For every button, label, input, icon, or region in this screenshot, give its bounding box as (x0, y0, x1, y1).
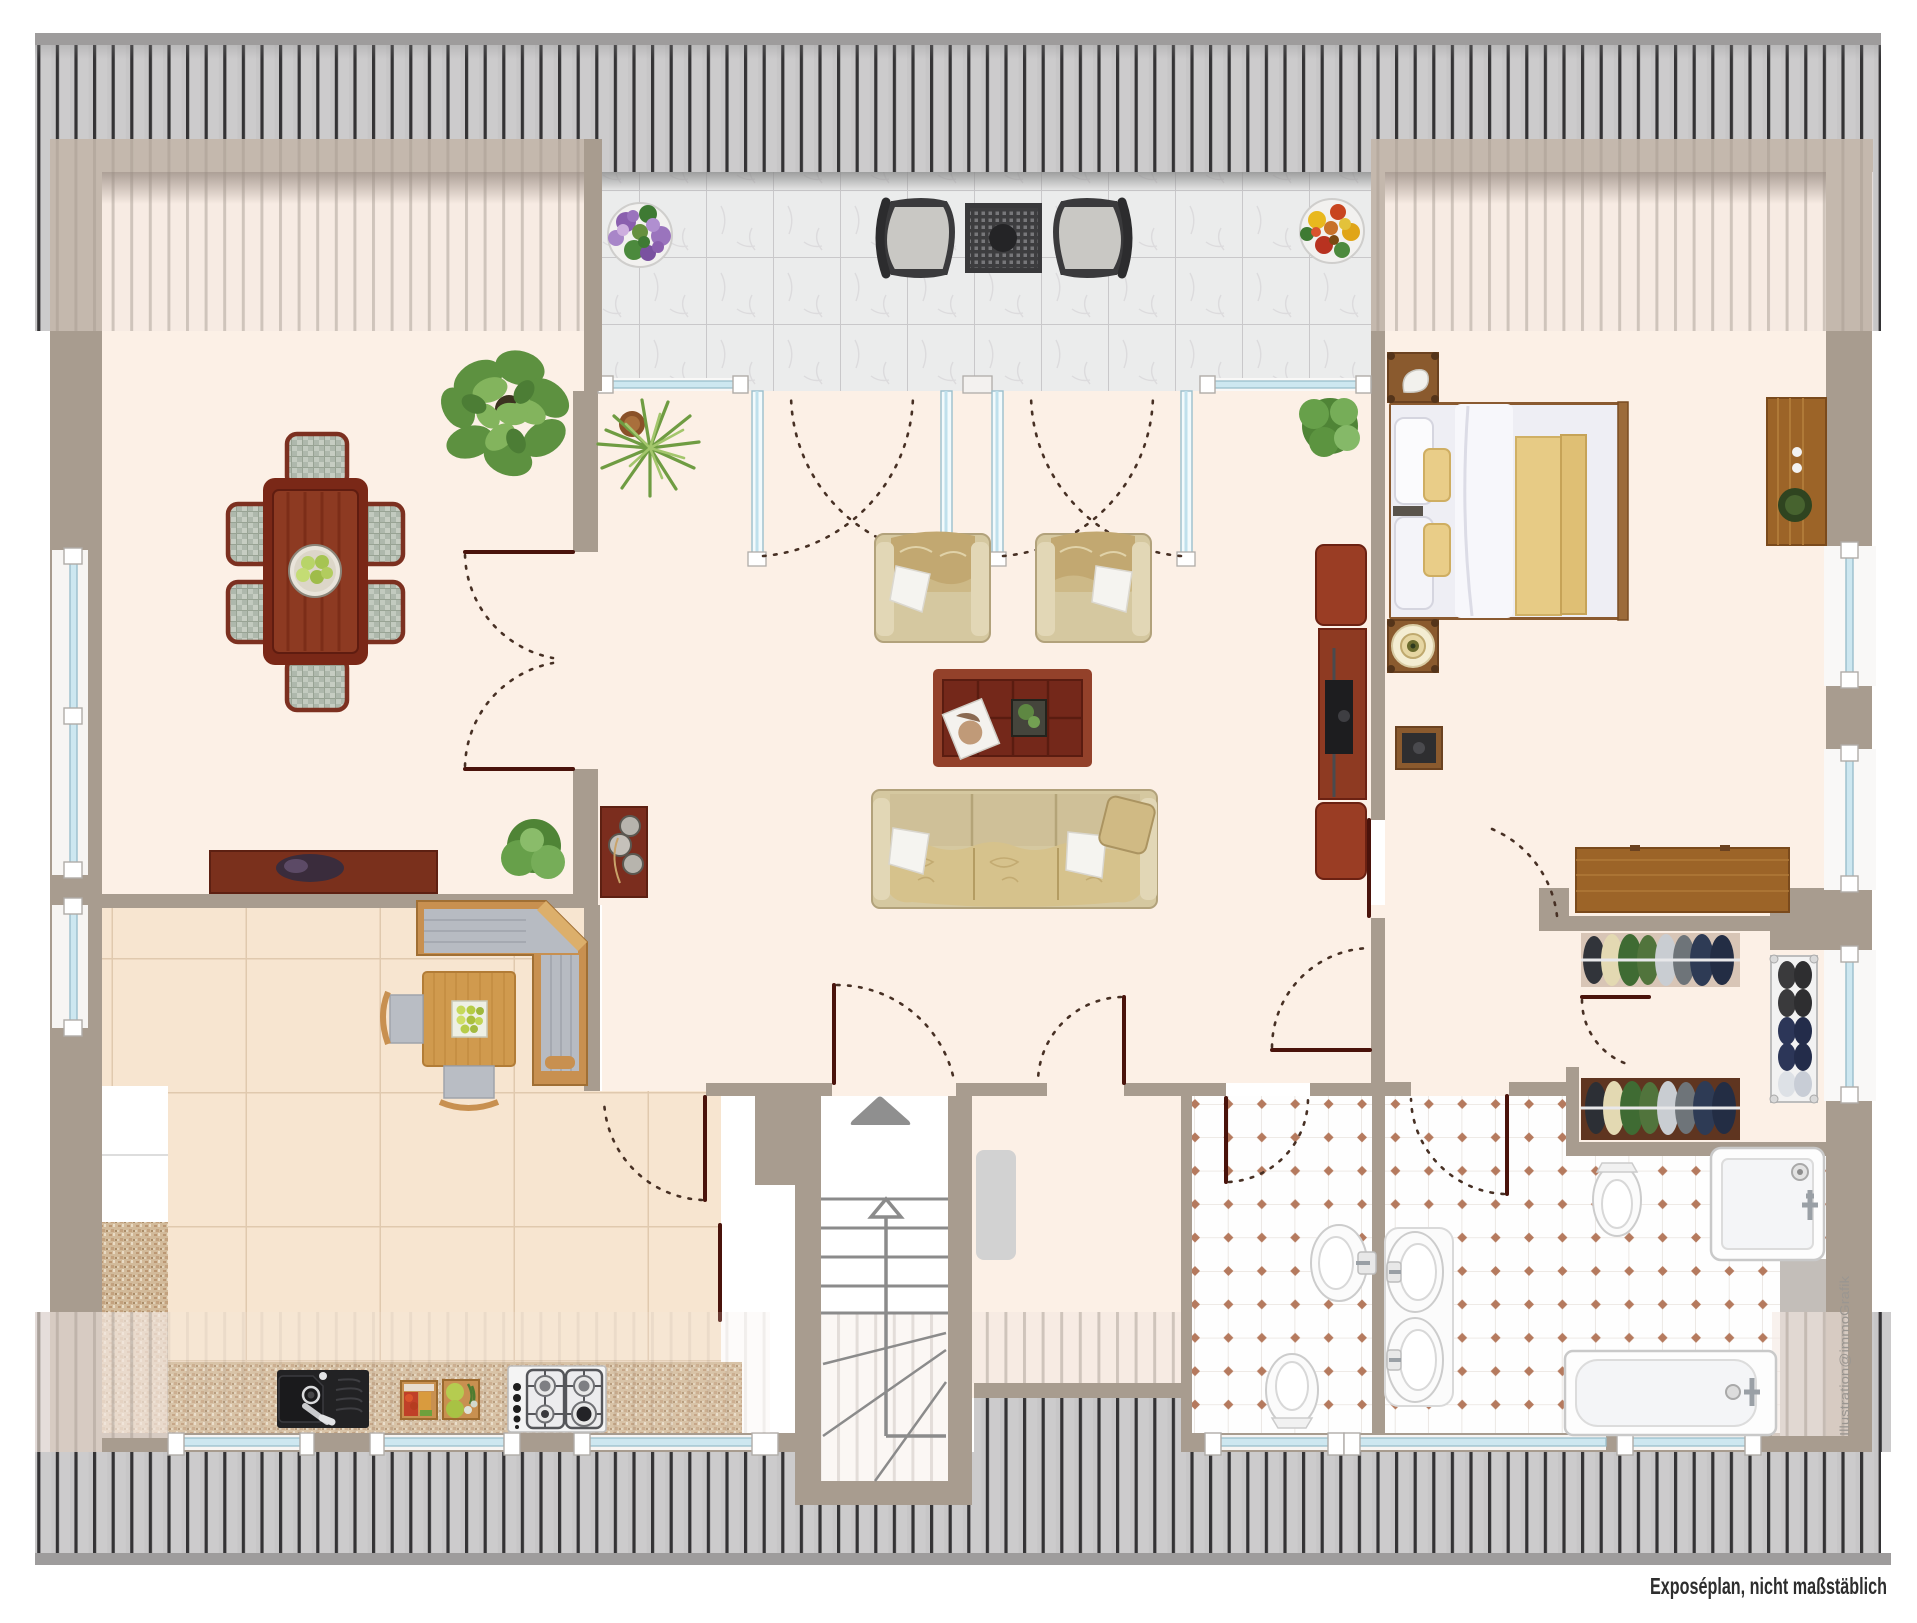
svg-text:Exposéplan, nicht maßstäblich: Exposéplan, nicht maßstäblich (1650, 1573, 1887, 1599)
svg-text:Illustration@immoGrafik: Illustration@immoGrafik (1837, 1275, 1852, 1436)
